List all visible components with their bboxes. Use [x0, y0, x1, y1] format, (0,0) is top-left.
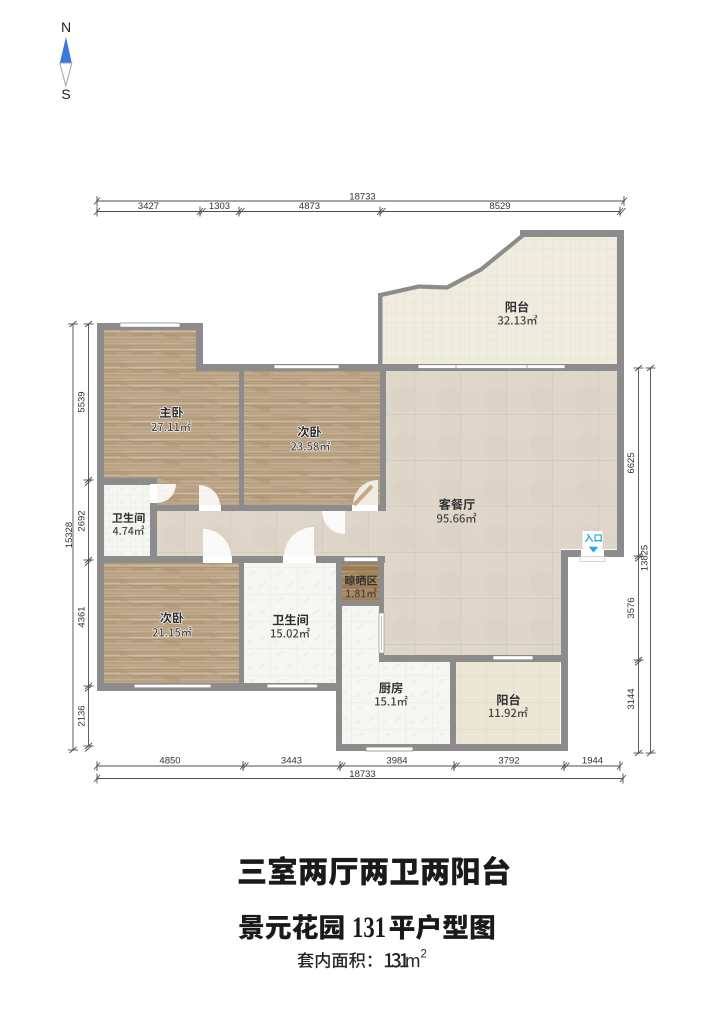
svg-text:4850: 4850: [159, 756, 180, 767]
svg-text:1303: 1303: [209, 201, 230, 212]
svg-text:m: m: [405, 950, 420, 971]
svg-text:8529: 8529: [489, 201, 510, 212]
svg-text:4873: 4873: [299, 201, 320, 212]
svg-text:3427: 3427: [138, 201, 159, 212]
svg-text:3144: 3144: [626, 688, 637, 709]
svg-text:5539: 5539: [77, 391, 88, 412]
svg-text:2692: 2692: [77, 510, 88, 531]
svg-text:2136: 2136: [77, 705, 88, 726]
svg-text:18733: 18733: [349, 769, 375, 780]
svg-text:13825: 13825: [640, 545, 651, 571]
svg-text:3984: 3984: [386, 756, 407, 767]
svg-text:4361: 4361: [77, 606, 88, 627]
svg-text:3576: 3576: [626, 597, 637, 618]
svg-text:131: 131: [352, 911, 386, 944]
svg-text:1944: 1944: [582, 756, 603, 767]
svg-text:3792: 3792: [498, 756, 519, 767]
svg-text:15328: 15328: [64, 522, 75, 548]
svg-text:N: N: [61, 19, 71, 35]
svg-text:3443: 3443: [281, 756, 302, 767]
svg-text:2: 2: [421, 949, 427, 961]
svg-text:6625: 6625: [626, 452, 637, 473]
svg-text:18733: 18733: [349, 192, 375, 203]
svg-text:S: S: [61, 86, 70, 102]
